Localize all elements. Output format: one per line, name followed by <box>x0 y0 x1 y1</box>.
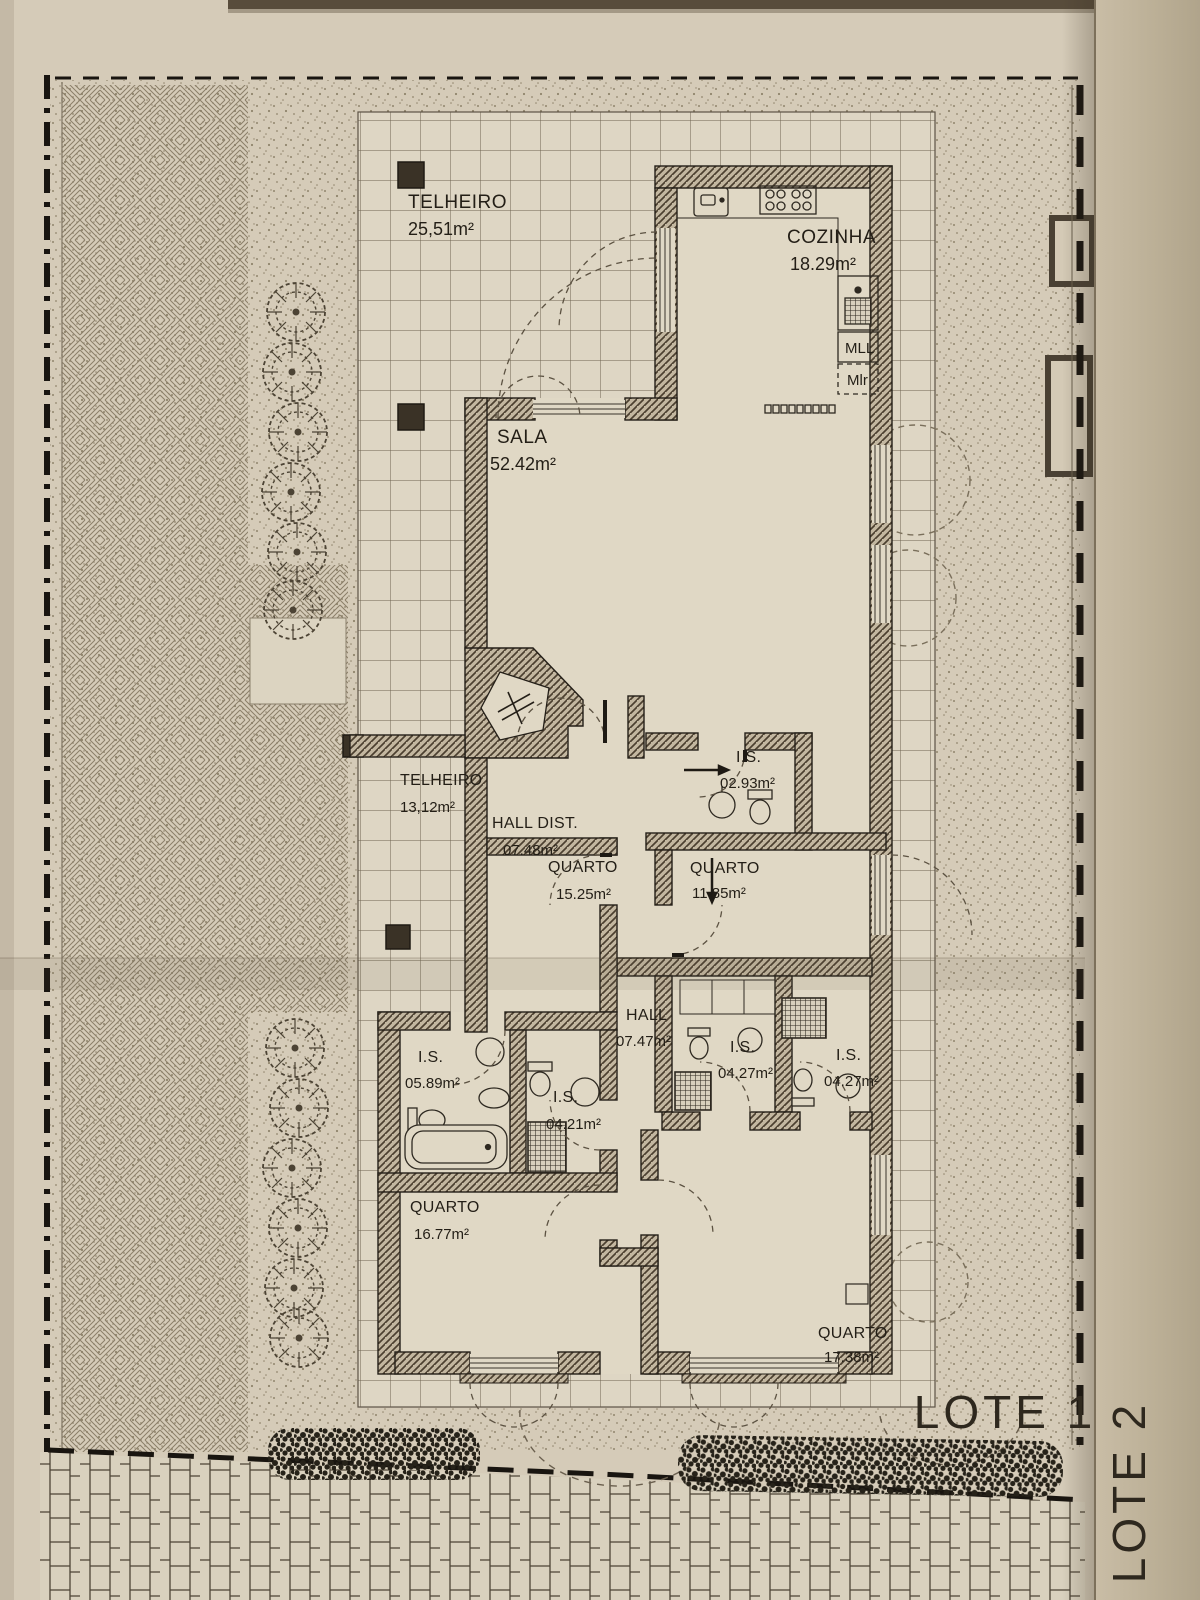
svg-text:13,12m²: 13,12m² <box>400 799 455 816</box>
bathtub-icon <box>405 1125 507 1169</box>
svg-text:25,51m²: 25,51m² <box>408 219 474 239</box>
lot-label-2: LOTE 2 <box>1103 1401 1155 1584</box>
svg-text:I.S.: I.S. <box>836 1047 861 1064</box>
garden-patch <box>250 618 346 704</box>
washer-label: MLL <box>845 340 874 357</box>
svg-text:I.S.: I.S. <box>418 1049 443 1066</box>
svg-text:18.29m²: 18.29m² <box>790 254 856 274</box>
svg-text:COZINHA: COZINHA <box>787 227 876 248</box>
cabinet-squares <box>765 405 835 413</box>
svg-text:52.42m²: 52.42m² <box>490 454 556 474</box>
toilet-icon <box>748 790 772 824</box>
svg-text:QUARTO: QUARTO <box>410 1199 480 1216</box>
svg-text:QUARTO: QUARTO <box>690 860 760 877</box>
dryer-label: Mlr <box>847 372 868 389</box>
svg-text:17.38m²: 17.38m² <box>824 1349 879 1366</box>
svg-text:05.89m²: 05.89m² <box>405 1075 460 1092</box>
svg-text:TELHEIRO: TELHEIRO <box>408 192 507 213</box>
paper-crease <box>0 958 1085 990</box>
svg-text:15.25m²: 15.25m² <box>556 886 611 903</box>
svg-text:11.85m²: 11.85m² <box>692 885 746 902</box>
toilet-icon <box>528 1062 552 1096</box>
bidet-icon <box>479 1088 509 1108</box>
svg-text:02.93m²: 02.93m² <box>720 775 775 792</box>
svg-text:I.S.: I.S. <box>730 1039 755 1056</box>
scanned-floor-plan-photo: TELHEIRO25,51m² COZINHA18.29m² SALA52.42… <box>0 0 1200 1600</box>
svg-text:TELHEIRO: TELHEIRO <box>400 772 482 789</box>
shower-icon <box>675 1072 711 1110</box>
svg-text:04.27m²: 04.27m² <box>718 1065 773 1082</box>
paper-fold-strip <box>1095 0 1200 1600</box>
svg-text:07.47m²: 07.47m² <box>616 1033 671 1050</box>
svg-text:QUARTO: QUARTO <box>548 859 618 876</box>
svg-text:16.77m²: 16.77m² <box>414 1226 469 1243</box>
svg-text:I.S.: I.S. <box>553 1089 578 1106</box>
svg-text:QUARTO: QUARTO <box>818 1325 888 1342</box>
svg-text:SALA: SALA <box>497 427 548 448</box>
svg-text:04.27m²: 04.27m² <box>824 1073 879 1090</box>
svg-text:I.S.: I.S. <box>736 749 761 766</box>
svg-text:HALL: HALL <box>626 1007 667 1024</box>
svg-text:HALL DIST.: HALL DIST. <box>492 815 578 832</box>
shower-icon <box>782 998 826 1038</box>
photo-top-edge <box>228 0 1200 9</box>
toilet-icon <box>688 1028 710 1059</box>
floor-plan-canvas: TELHEIRO25,51m² COZINHA18.29m² SALA52.42… <box>0 0 1200 1600</box>
svg-text:07.48m²: 07.48m² <box>503 842 558 859</box>
sink-icon <box>709 792 735 818</box>
svg-text:04.21m²: 04.21m² <box>546 1116 601 1133</box>
